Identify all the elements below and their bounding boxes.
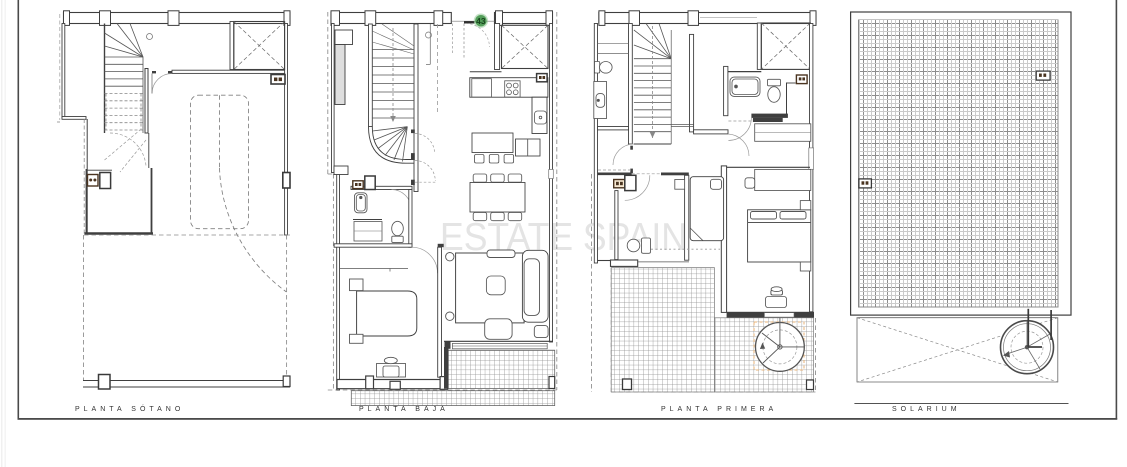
svg-text:SOLARIUM: SOLARIUM: [892, 406, 961, 413]
svg-text:PLANTA PRIMERA: PLANTA PRIMERA: [661, 406, 777, 413]
svg-text:43: 43: [476, 16, 486, 26]
svg-text:PLANTA SÓTANO: PLANTA SÓTANO: [75, 404, 184, 413]
svg-text:PLANTA BAJA: PLANTA BAJA: [359, 406, 449, 413]
